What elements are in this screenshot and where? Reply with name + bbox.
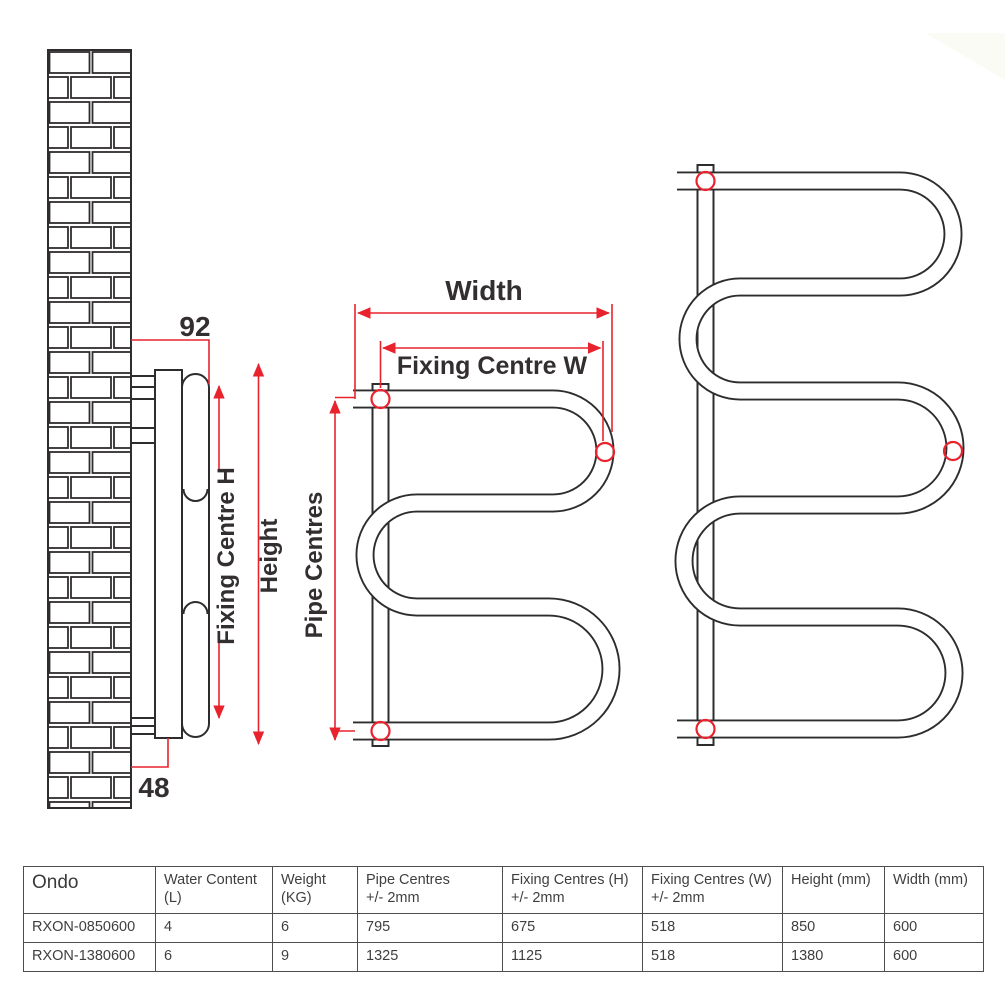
spec-table-section: Ondo Water Content (L) Weight (KG) Pipe … — [23, 866, 983, 972]
col-header-pipe-centres: Pipe Centres +/- 2mm — [358, 867, 503, 914]
wall-bracket-top-lower — [131, 387, 155, 399]
col-header-fixing-centres-w: Fixing Centres (W) +/- 2mm — [643, 867, 783, 914]
cell-water-content: 6 — [156, 943, 273, 972]
width-label: Width — [445, 275, 523, 306]
cell-fixing-centres-h: 675 — [503, 914, 643, 943]
front-view-1380 — [677, 165, 962, 745]
cell-width: 600 — [885, 914, 984, 943]
wall-bracket-mid — [131, 428, 155, 443]
cell-height: 850 — [783, 914, 885, 943]
cell-water-content: 4 — [156, 914, 273, 943]
serpentine-tube-850-outline — [353, 399, 611, 731]
cell-model: RXON-1380600 — [24, 943, 156, 972]
col-header-weight: Weight (KG) — [273, 867, 358, 914]
cell-fixing-centres-w: 518 — [643, 943, 783, 972]
serpentine-tube-1380-body — [677, 181, 955, 729]
col-header-product: Ondo — [24, 867, 156, 914]
pipe-centres-label: Pipe Centres — [301, 492, 328, 639]
cell-fixing-centres-w: 518 — [643, 914, 783, 943]
front-view-850 — [353, 384, 614, 746]
wall-bracket-bottom-lower — [131, 726, 155, 734]
cell-model: RXON-0850600 — [24, 914, 156, 943]
cell-width: 600 — [885, 943, 984, 972]
height-label: Height — [256, 519, 283, 594]
dim-48-label: 48 — [138, 772, 169, 803]
serpentine-tube-1380-outline — [677, 181, 955, 729]
col-header-height: Height (mm) — [783, 867, 885, 914]
wall-bracket-bottom-upper — [131, 718, 155, 726]
serpentine-tube-850-body — [353, 399, 611, 731]
side-tube-profile — [182, 374, 209, 737]
cell-pipe-centres: 795 — [358, 914, 503, 943]
cell-fixing-centres-h: 1125 — [503, 943, 643, 972]
dim-92-label: 92 — [179, 311, 210, 342]
header-row: Ondo Water Content (L) Weight (KG) Pipe … — [24, 867, 984, 914]
table-row: RXON-1380600 6 9 1325 1125 518 1380 600 — [24, 943, 984, 972]
table-row: RXON-0850600 4 6 795 675 518 850 600 — [24, 914, 984, 943]
cell-weight: 6 — [273, 914, 358, 943]
radiator-spec-sheet: 92 48 Fixing Centre H Height Width Fixin… — [0, 0, 1005, 1005]
corner-shade — [925, 33, 1005, 80]
brick-wall — [48, 50, 131, 808]
cell-pipe-centres: 1325 — [358, 943, 503, 972]
fixing-centre-h-label: Fixing Centre H — [213, 467, 240, 644]
fixing-centre-w-label: Fixing Centre W — [397, 352, 588, 380]
col-header-water-content: Water Content (L) — [156, 867, 273, 914]
col-header-fixing-centres-h: Fixing Centres (H) +/- 2mm — [503, 867, 643, 914]
wall-bracket-top-upper — [131, 376, 155, 387]
side-view — [48, 50, 209, 808]
mounting-rail-1380 — [698, 165, 714, 745]
cell-height: 1380 — [783, 943, 885, 972]
col-header-width: Width (mm) — [885, 867, 984, 914]
cell-weight: 9 — [273, 943, 358, 972]
depth-48-dim-line — [131, 738, 168, 767]
side-mounting-rail — [155, 370, 182, 738]
dimension-diagram: 92 48 Fixing Centre H Height Width Fixin… — [0, 0, 1005, 860]
spec-table: Ondo Water Content (L) Weight (KG) Pipe … — [23, 866, 984, 972]
